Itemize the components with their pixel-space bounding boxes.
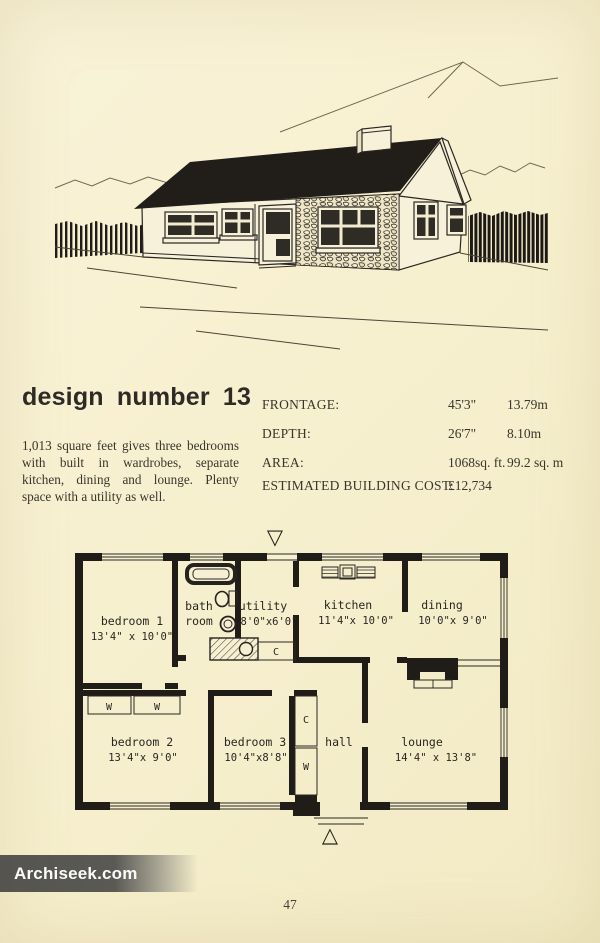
- spec-label: DEPTH:: [262, 426, 448, 442]
- room-label-bedroom-1: bedroom 1: [101, 614, 163, 628]
- svg-text:11'4"x 10'0": 11'4"x 10'0": [318, 615, 394, 627]
- description-line: 1,013 square feet gives three bedrooms: [22, 437, 239, 454]
- watermark-text: Archiseek.com: [14, 864, 138, 883]
- svg-text:room: room: [185, 614, 213, 628]
- room-label-dining: dining: [421, 598, 463, 612]
- room-label-bedroom-3: bedroom 3: [224, 735, 286, 749]
- airing-cupboard: [210, 638, 295, 660]
- spec-label: AREA:: [262, 455, 448, 471]
- spec-imperial-value: 1068sq. ft.: [448, 455, 507, 471]
- chimney: [357, 126, 391, 154]
- svg-text:13'4" x 10'0": 13'4" x 10'0": [91, 631, 173, 643]
- kitchen-sink: [343, 568, 352, 576]
- cupboard-label: C: [273, 647, 279, 658]
- fence-right: [468, 211, 548, 263]
- svg-text:8'0"x6'0": 8'0"x6'0": [241, 616, 298, 628]
- spec-label: ESTIMATED BUILDING COST:: [262, 478, 448, 494]
- spec-label: FRONTAGE:: [262, 397, 448, 413]
- spec-metric-value: 99.2 sq. m: [507, 455, 563, 471]
- room-label-hall: hall: [325, 735, 353, 749]
- room-label-bedroom-2: bedroom 2: [111, 735, 173, 749]
- door-glazing: [266, 212, 290, 234]
- wardrobe-label: W: [106, 702, 113, 713]
- room-label-lounge: lounge: [401, 735, 443, 749]
- wardrobe-label: W: [154, 702, 161, 713]
- book-page: design number 13 FRONTAGE: 45'3" 13.79m …: [0, 0, 600, 943]
- description-paragraph: 1,013 square feet gives three bedrooms w…: [22, 437, 239, 505]
- spec-imperial-value: 26'7": [448, 426, 507, 442]
- bathtub: [187, 565, 235, 583]
- fireplace: [407, 658, 458, 688]
- entrance-door: [255, 204, 296, 268]
- cupboard-label: C: [303, 715, 309, 726]
- spec-row-depth: DEPTH: 26'7" 8.10m: [262, 426, 587, 442]
- svg-text:10'0"x 9'0": 10'0"x 9'0": [418, 615, 488, 627]
- design-title: design number 13: [22, 383, 251, 412]
- watermark: Archiseek.com: [0, 855, 198, 892]
- kitchen-units: [322, 565, 375, 579]
- window-sill: [163, 238, 219, 243]
- room-label-kitchen: kitchen: [324, 598, 372, 612]
- room-label-utility: utility: [239, 599, 288, 613]
- spec-imperial-value: 45'3": [448, 397, 507, 413]
- spec-row-area: AREA: 1068sq. ft. 99.2 sq. m: [262, 455, 587, 471]
- house-illustration: [30, 20, 570, 350]
- specs-table: FRONTAGE: 45'3" 13.79m DEPTH: 26'7" 8.10…: [262, 397, 587, 507]
- floor-plan: ▽ △: [62, 520, 540, 850]
- svg-text:14'4" x 13'8": 14'4" x 13'8": [395, 752, 477, 764]
- svg-text:10'4"x8'8": 10'4"x8'8": [224, 752, 287, 764]
- spec-metric-value: 8.10m: [507, 426, 541, 442]
- toilet: [216, 592, 229, 607]
- basin: [221, 617, 236, 632]
- plan-marker-bottom-icon: △: [322, 823, 339, 847]
- description-line: space with a utility as well.: [22, 488, 239, 505]
- description-line: with built in wardrobes, separate: [22, 454, 239, 471]
- spec-metric-value: 13.79m: [507, 397, 548, 413]
- svg-text:13'4"x 9'0": 13'4"x 9'0": [108, 752, 178, 764]
- wardrobe-label: W: [303, 762, 310, 773]
- window-sill: [316, 248, 380, 253]
- plan-marker-top-icon: ▽: [267, 525, 284, 549]
- spec-row-frontage: FRONTAGE: 45'3" 13.79m: [262, 397, 587, 413]
- page-number: 47: [0, 897, 580, 913]
- spec-imperial-value: £12,734: [448, 478, 507, 494]
- spec-row-cost: ESTIMATED BUILDING COST: £12,734: [262, 478, 587, 494]
- room-label-bathroom: bath: [185, 599, 213, 613]
- description-line: kitchen, dining and lounge. Plenty: [22, 471, 239, 488]
